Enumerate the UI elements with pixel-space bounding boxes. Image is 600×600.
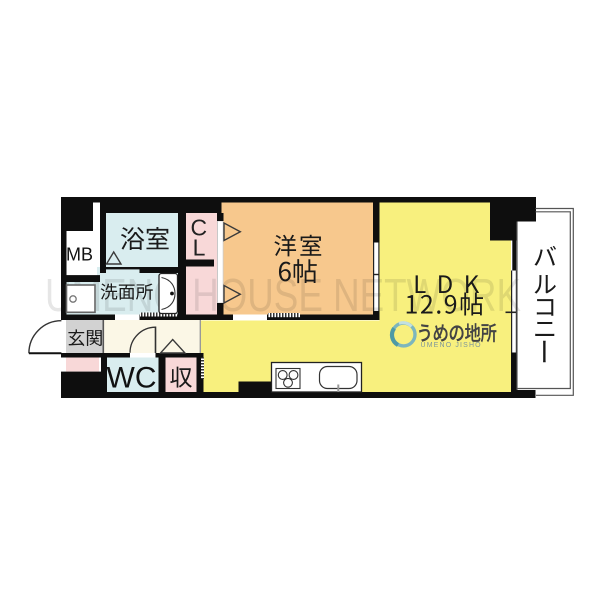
svg-text:L: L [193,235,206,261]
svg-text:WC: WC [107,362,157,395]
svg-text:MB: MB [66,245,93,265]
svg-text:UMENO JISHO: UMENO JISHO [421,342,482,349]
